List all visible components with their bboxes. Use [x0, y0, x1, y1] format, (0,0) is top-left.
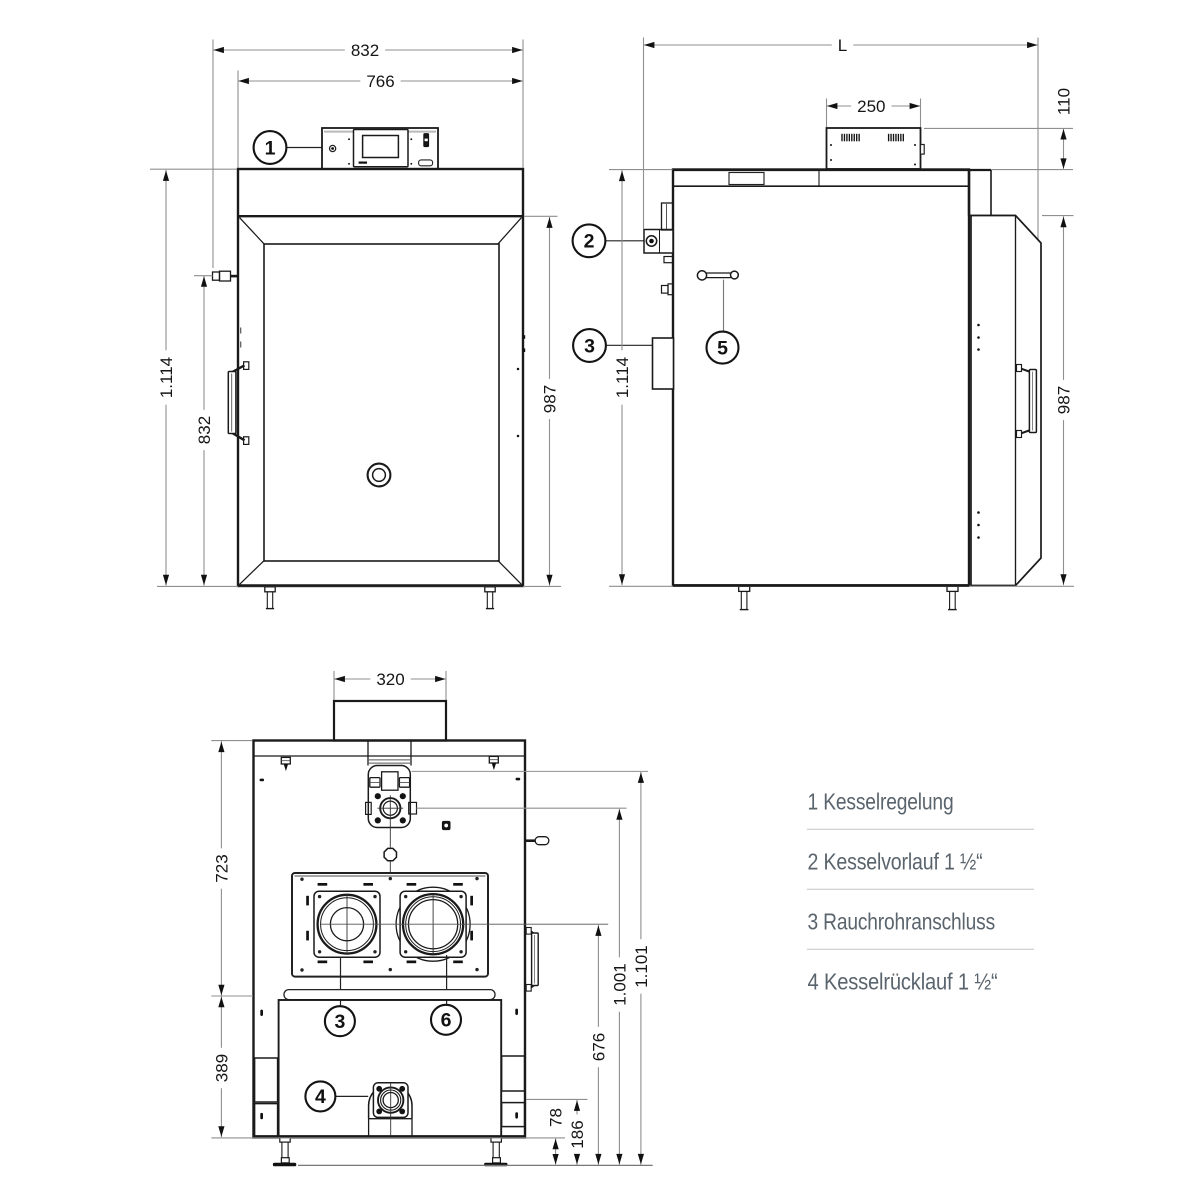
svg-text:3: 3: [334, 1011, 345, 1033]
svg-text:2: 2: [584, 231, 595, 253]
svg-text:5: 5: [717, 337, 728, 359]
svg-text:6: 6: [441, 1010, 452, 1032]
svg-text:676: 676: [589, 1033, 608, 1061]
svg-text:4 Kesselrücklauf 1 ½“: 4 Kesselrücklauf 1 ½“: [808, 969, 998, 995]
svg-text:4: 4: [315, 1086, 326, 1108]
svg-text:3 Rauchrohranschluss: 3 Rauchrohranschluss: [808, 909, 996, 935]
svg-text:723: 723: [212, 854, 231, 882]
svg-text:1.114: 1.114: [157, 357, 176, 398]
svg-text:2 Kesselvorlauf 1 ½“: 2 Kesselvorlauf 1 ½“: [808, 849, 983, 875]
svg-text:1 Kesselregelung: 1 Kesselregelung: [808, 789, 954, 815]
svg-text:320: 320: [376, 670, 404, 689]
svg-text:110: 110: [1055, 88, 1074, 115]
svg-text:250: 250: [857, 97, 885, 116]
svg-text:186: 186: [568, 1120, 587, 1148]
svg-text:389: 389: [212, 1054, 231, 1082]
svg-text:1.101: 1.101: [632, 945, 651, 988]
svg-text:1.114: 1.114: [613, 357, 632, 398]
svg-text:1.001: 1.001: [610, 963, 629, 1006]
svg-text:832: 832: [351, 41, 379, 60]
svg-text:832: 832: [195, 416, 214, 444]
svg-text:766: 766: [366, 72, 394, 91]
svg-text:1: 1: [265, 137, 276, 159]
svg-text:987: 987: [540, 385, 559, 413]
svg-text:3: 3: [584, 335, 595, 357]
svg-text:78: 78: [547, 1108, 566, 1127]
svg-text:987: 987: [1054, 386, 1073, 414]
svg-text:L: L: [838, 36, 847, 55]
